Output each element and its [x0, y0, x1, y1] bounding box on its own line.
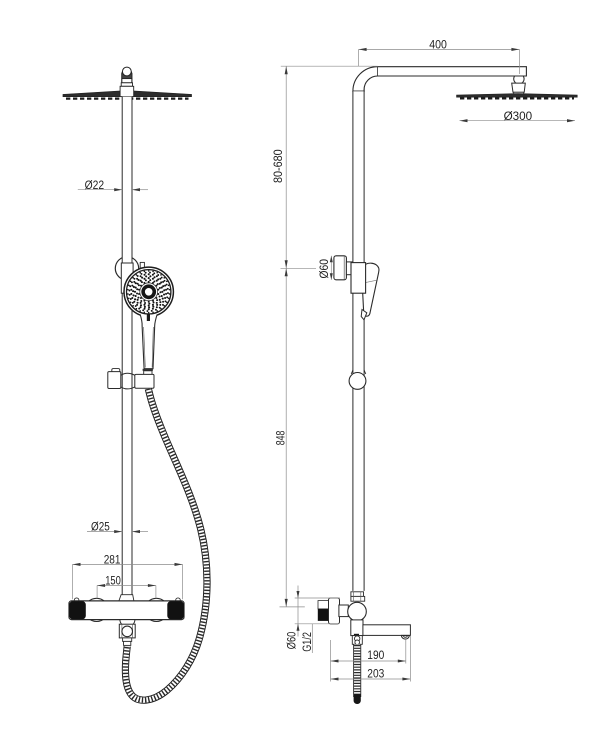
svg-text:80-680: 80-680 [271, 149, 285, 183]
svg-text:848: 848 [273, 430, 287, 445]
svg-text:Ø60: Ø60 [317, 259, 331, 279]
svg-text:190: 190 [367, 648, 384, 662]
svg-text:Ø60: Ø60 [284, 632, 298, 650]
svg-text:203: 203 [367, 666, 384, 680]
